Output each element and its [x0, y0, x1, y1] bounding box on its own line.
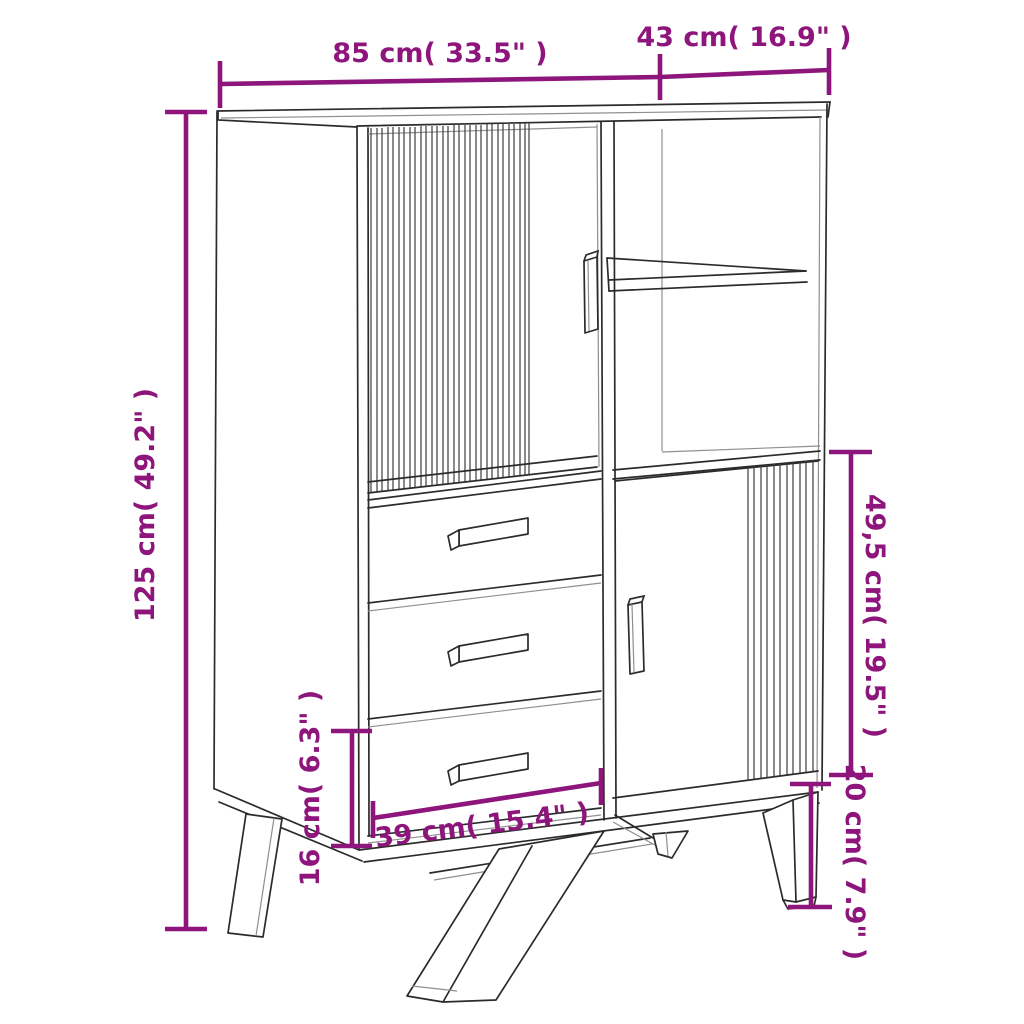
sliding-door-top: [368, 123, 599, 493]
drawer-2-handle: [459, 634, 528, 662]
dim-label-bottom-drawer-height: 16 cm( 6.3" ): [295, 690, 326, 887]
cabinet-top-panel: [217, 102, 830, 127]
leg-back-left: [228, 814, 282, 937]
dim-width: 85 cm( 33.5" ): [220, 38, 660, 108]
leg-back-right: [653, 831, 688, 858]
dim-label-depth: 43 cm( 16.9" ): [636, 22, 851, 53]
left-side-panel: [214, 112, 369, 861]
dim-bottom-drawer-height: 16 cm( 6.3" ): [295, 690, 372, 887]
sliding-door-bottom: [613, 460, 818, 798]
dim-door-section-height: 49,5 cm( 19.5" ): [829, 452, 890, 775]
dim-height: 125 cm( 49.2" ): [130, 112, 207, 929]
open-shelf-compartment: [607, 129, 820, 479]
right-side-edge: [817, 104, 827, 790]
slat-lines-bottom-door: [748, 460, 813, 780]
furniture-dimension-diagram: 85 cm( 33.5" ) 43 cm( 16.9" ) 125 cm( 49…: [0, 0, 1024, 1024]
dim-depth: 43 cm( 16.9" ): [636, 22, 851, 95]
drawer-3-handle: [459, 753, 528, 781]
leg-front-left: [407, 831, 604, 1002]
compartment-floor: [613, 446, 820, 479]
top-door-handle: [584, 257, 598, 333]
drawer-1: [368, 518, 601, 611]
diagram-canvas: 85 cm( 33.5" ) 43 cm( 16.9" ) 125 cm( 49…: [0, 0, 1024, 1024]
bottom-door-handle: [628, 602, 644, 674]
dim-label-height: 125 cm( 49.2" ): [130, 388, 161, 622]
drawer-2: [368, 634, 601, 727]
dim-label-leg-height: 20 cm( 7.9" ): [839, 764, 870, 961]
slat-lines-top-door: [371, 123, 529, 493]
middle-shelf: [607, 258, 807, 291]
dim-label-width: 85 cm( 33.5" ): [332, 38, 547, 69]
dim-label-door-section-height: 49,5 cm( 19.5" ): [859, 494, 890, 738]
drawer-1-handle: [459, 518, 528, 546]
